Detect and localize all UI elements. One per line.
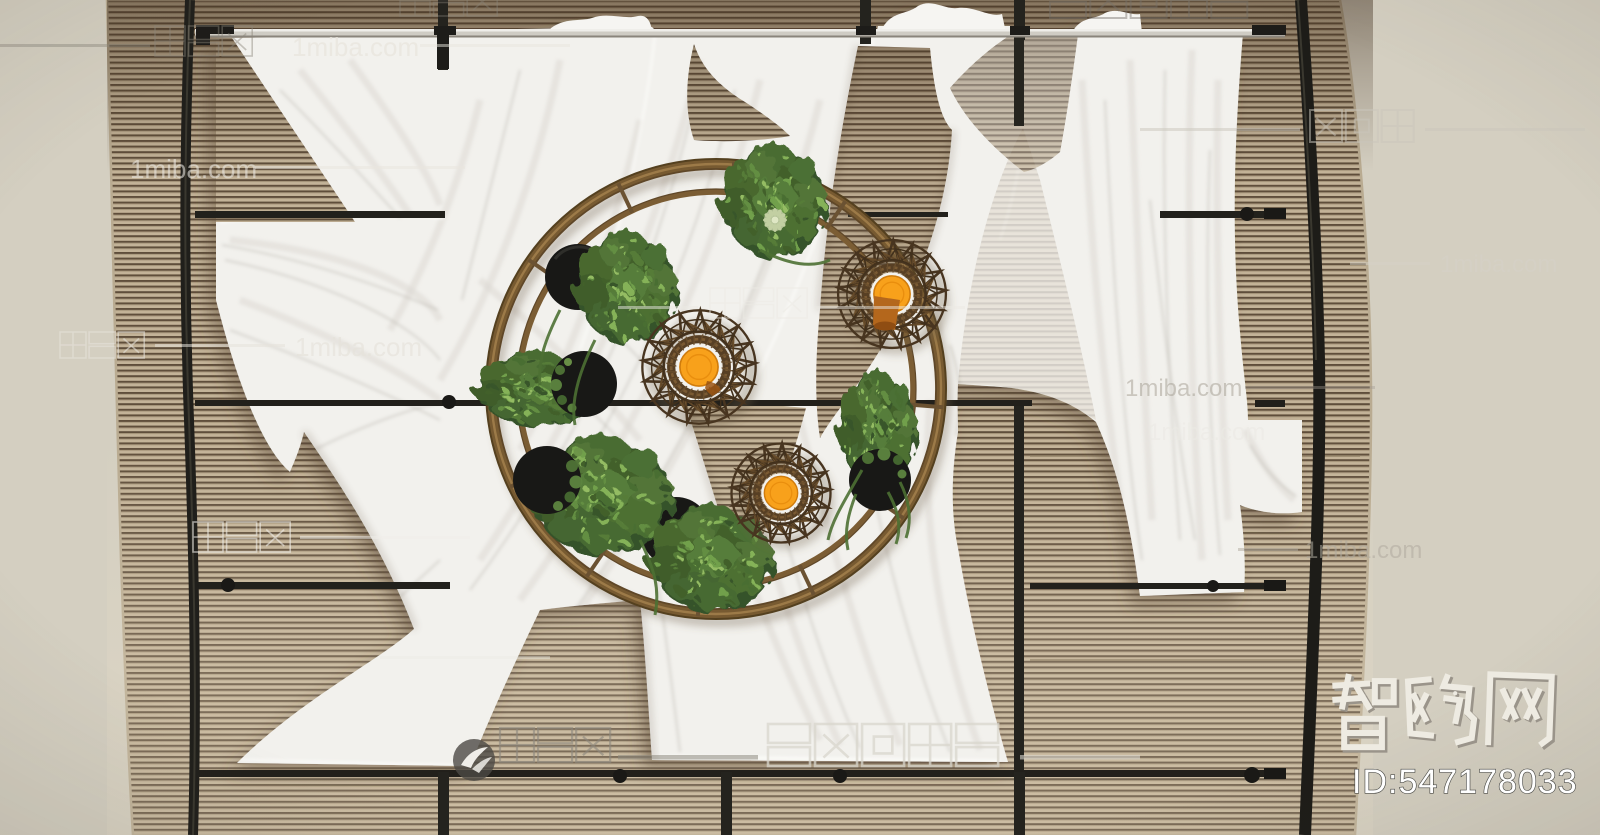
svg-text:1miba.com: 1miba.com xyxy=(1440,251,1557,278)
svg-text:1miba.com: 1miba.com xyxy=(1125,375,1242,402)
svg-text:1miba.com: 1miba.com xyxy=(130,154,257,184)
svg-text:1miba.com: 1miba.com xyxy=(1148,419,1265,446)
svg-text:ID:547178033: ID:547178033 xyxy=(1352,763,1578,801)
svg-text:1miba.com: 1miba.com xyxy=(292,32,419,62)
svg-text:1miba.com: 1miba.com xyxy=(1305,537,1422,564)
svg-text:1miba.com: 1miba.com xyxy=(295,332,422,362)
